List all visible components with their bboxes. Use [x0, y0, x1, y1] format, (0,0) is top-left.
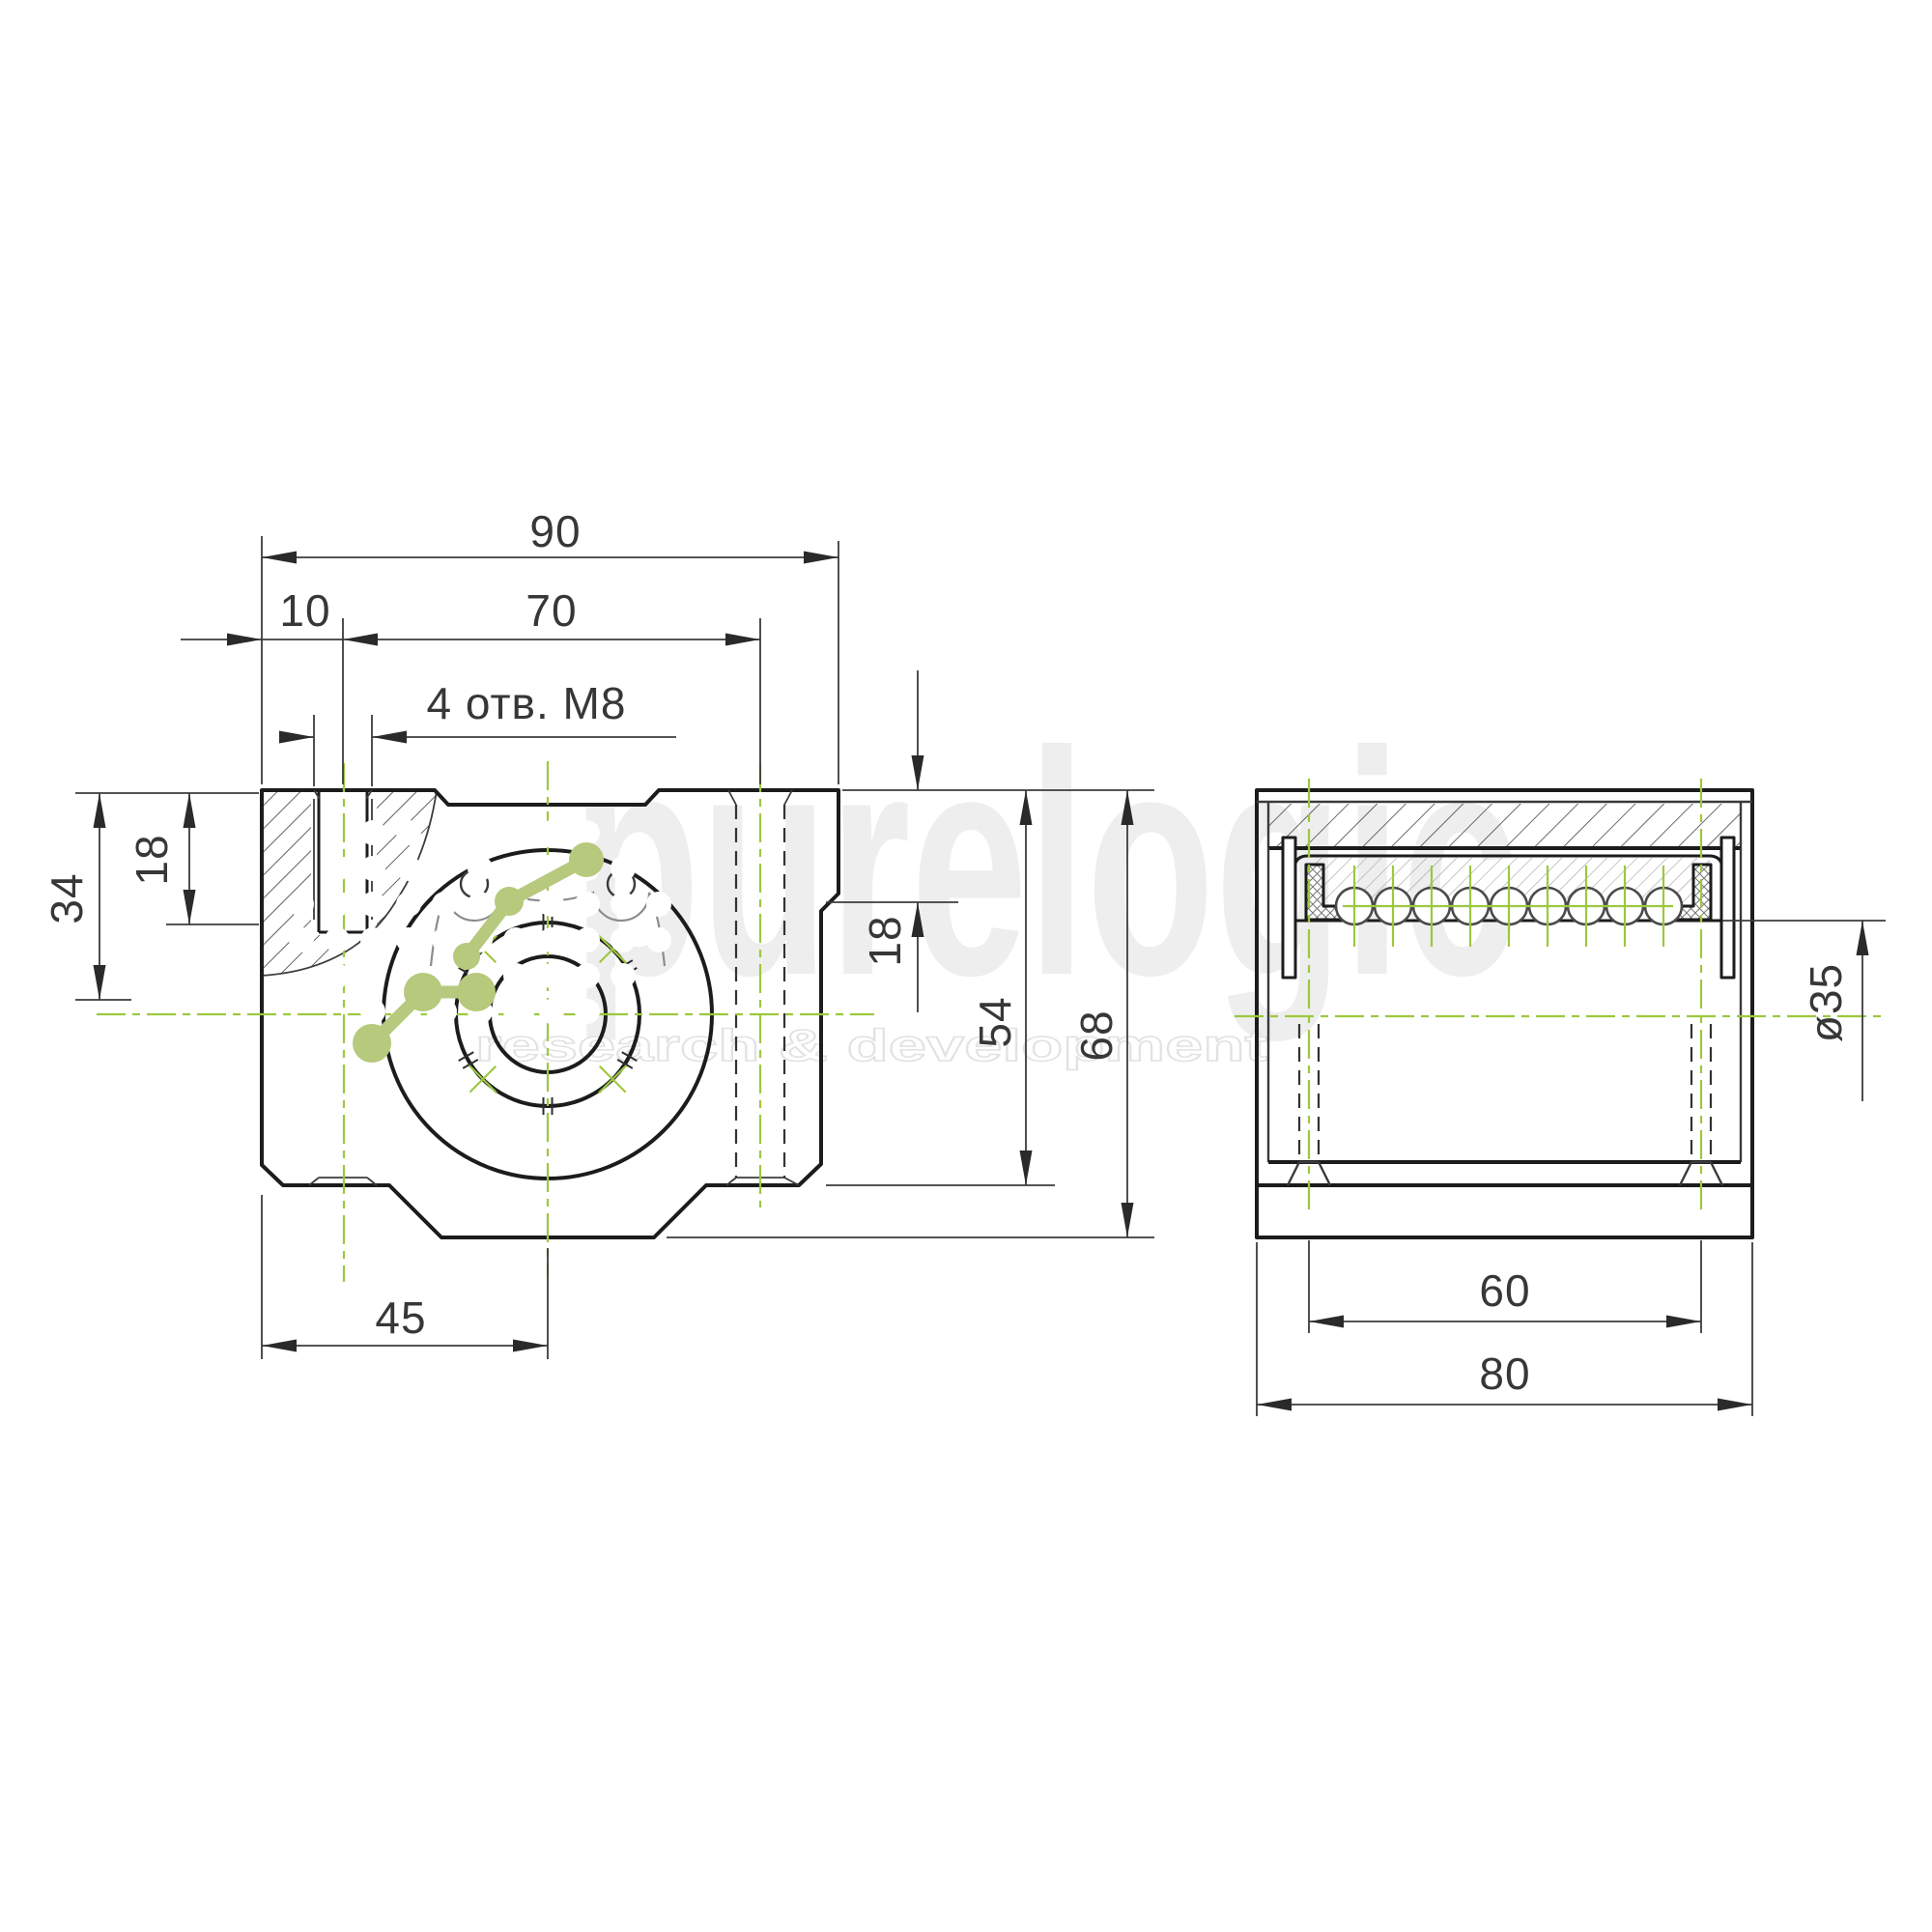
dim-overall-length: 80	[1479, 1349, 1530, 1399]
dim-overall-height: 68	[1071, 1009, 1122, 1061]
dim-hole-spacing-top: 70	[526, 585, 577, 636]
dim-flange-depth: 18	[127, 834, 177, 885]
dim-side-height: 54	[970, 996, 1020, 1047]
dim-center-height: 34	[42, 872, 92, 923]
dim-hole-spacing-side: 60	[1479, 1265, 1530, 1316]
dim-hole-offset: 10	[279, 585, 330, 636]
watermark-tagline-text: research & development	[475, 1020, 1267, 1070]
dim-bore-diameter: ø35	[1801, 963, 1851, 1042]
side-countersinks	[1288, 1162, 1722, 1185]
circlip-left	[1283, 838, 1295, 978]
drawing-canvas: purelogic research & development	[0, 0, 1932, 1932]
dim-overall-width: 90	[529, 506, 581, 556]
side-top-hatch	[1268, 804, 1741, 848]
cad-drawing: purelogic research & development	[0, 0, 1932, 1932]
side-hidden-holes	[1299, 1024, 1711, 1162]
dim-base-to-center: 45	[375, 1293, 426, 1343]
circlip-right	[1721, 838, 1734, 978]
dim-thread-note: 4 отв. М8	[427, 678, 627, 728]
dim-step-height: 18	[860, 915, 910, 966]
